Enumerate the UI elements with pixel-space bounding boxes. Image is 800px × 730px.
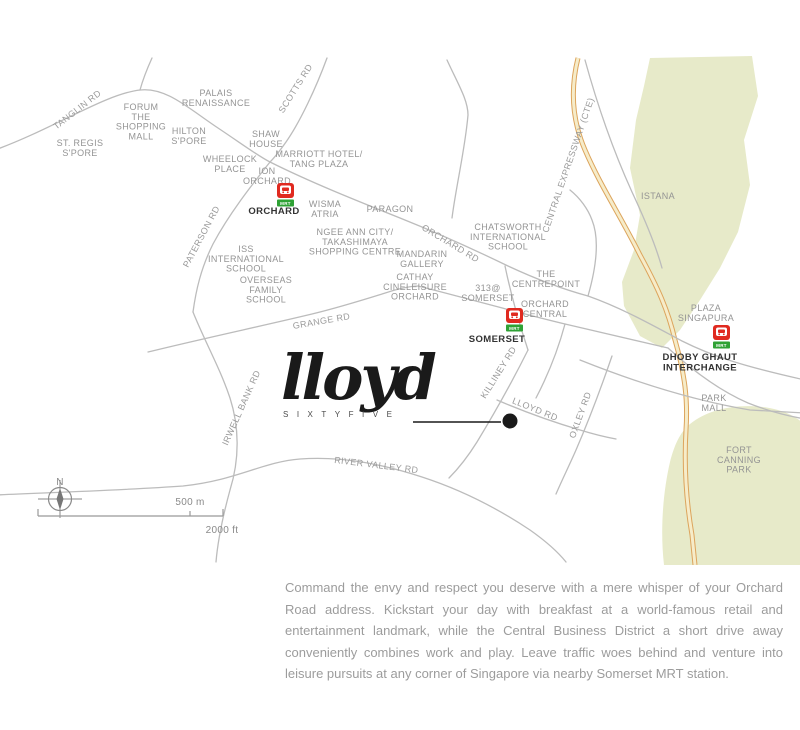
map-label-313-somerset: 313@SOMERSET: [461, 283, 514, 303]
road-label-irwell-bank-rd: IRWELL BANK RD: [220, 369, 262, 447]
location-marker-dot: [503, 414, 518, 429]
location-map: ST. REGISS'POREFORUMTHESHOPPINGMALLPALAI…: [0, 0, 800, 565]
road: [536, 324, 565, 398]
map-label-chatsworth-international-school: CHATSWORTHINTERNATIONALSCHOOL: [470, 222, 546, 252]
svg-text:MRT: MRT: [509, 326, 520, 331]
map-label-st-regis-spore: ST. REGISS'PORE: [57, 138, 104, 158]
map-label-marriott-hotel-tang-plaza: MARRIOTT HOTEL/TANG PLAZA: [275, 149, 362, 169]
map-label-wisma-atria: WISMAATRIA: [309, 199, 341, 219]
map-label-ngee-ann-city-takashimaya: NGEE ANN CITY/TAKASHIMAYASHOPPING CENTRE: [309, 227, 401, 257]
scale-label-imperial: 2000 ft: [206, 525, 239, 536]
brochure-page: ST. REGISS'POREFORUMTHESHOPPINGMALLPALAI…: [0, 0, 800, 730]
map-label-mandarin-gallery: MANDARINGALLERY: [397, 249, 448, 269]
description-paragraph: Command the envy and respect you deserve…: [285, 577, 783, 685]
road-label-central-expressway-cte: CENTRAL EXPRESSWAY (CTE): [540, 96, 596, 234]
map-label-park-mall: PARKMALL: [701, 393, 726, 413]
road-label-grange-rd: GRANGE RD: [292, 311, 351, 331]
mrt-station-icon-somerset: MRT: [506, 308, 523, 332]
map-label-palais-renaissance: PALAISRENAISSANCE: [182, 88, 250, 108]
road-label-river-valley-rd: RIVER VALLEY RD: [334, 455, 419, 475]
map-canvas: ST. REGISS'POREFORUMTHESHOPPINGMALLPALAI…: [0, 0, 800, 565]
road-label-scotts-rd: SCOTTS RD: [276, 62, 314, 115]
fort-canning-park-area: [662, 406, 800, 565]
map-label-forum-the-shopping-mall: FORUMTHESHOPPINGMALL: [116, 102, 166, 141]
map-label-shaw-house: SHAWHOUSE: [249, 129, 283, 149]
road-label-killiney-rd: KILLINEY RD: [479, 345, 519, 401]
road-label-tanglin-rd: TANGLIN RD: [51, 88, 103, 132]
mrt-station-icon-orchard: MRT: [277, 183, 294, 207]
road: [0, 458, 566, 562]
svg-text:MRT: MRT: [716, 343, 727, 348]
station-label-dhoby-ghaut: DHOBY GHAUTINTERCHANGE: [663, 352, 738, 374]
logo-subtitle: SIXTYFIVE: [283, 410, 481, 419]
map-label-orchard-central: ORCHARDCENTRAL: [521, 299, 569, 319]
map-label-paragon: PARAGON: [367, 204, 414, 214]
mrt-station-icon-dhoby-ghaut: MRT: [713, 325, 730, 349]
compass-needle: [57, 488, 64, 510]
logo-script: lloyd: [281, 348, 481, 408]
scale-label-metric: 500 m: [175, 497, 204, 508]
map-label-hilton-spore: HILTONS'PORE: [171, 126, 206, 146]
road: [140, 58, 152, 90]
map-label-cathay-cineleisure-orchard: CATHAYCINELEISUREORCHARD: [383, 272, 447, 302]
map-label-wheelock-place: WHEELOCKPLACE: [203, 154, 257, 174]
road: [447, 60, 468, 218]
station-label-somerset: SOMERSET: [469, 334, 526, 345]
scale-bar: 500 m 2000 ft: [38, 497, 238, 536]
map-label-istana: ISTANA: [641, 191, 675, 201]
station-label-orchard: ORCHARD: [248, 206, 299, 217]
compass: N: [38, 477, 82, 518]
map-label-iss-international-school: ISSINTERNATIONALSCHOOL: [208, 244, 284, 274]
map-label-overseas-family-school: OVERSEASFAMILYSCHOOL: [240, 275, 292, 305]
project-logo: lloyd SIXTYFIVE: [281, 348, 481, 419]
